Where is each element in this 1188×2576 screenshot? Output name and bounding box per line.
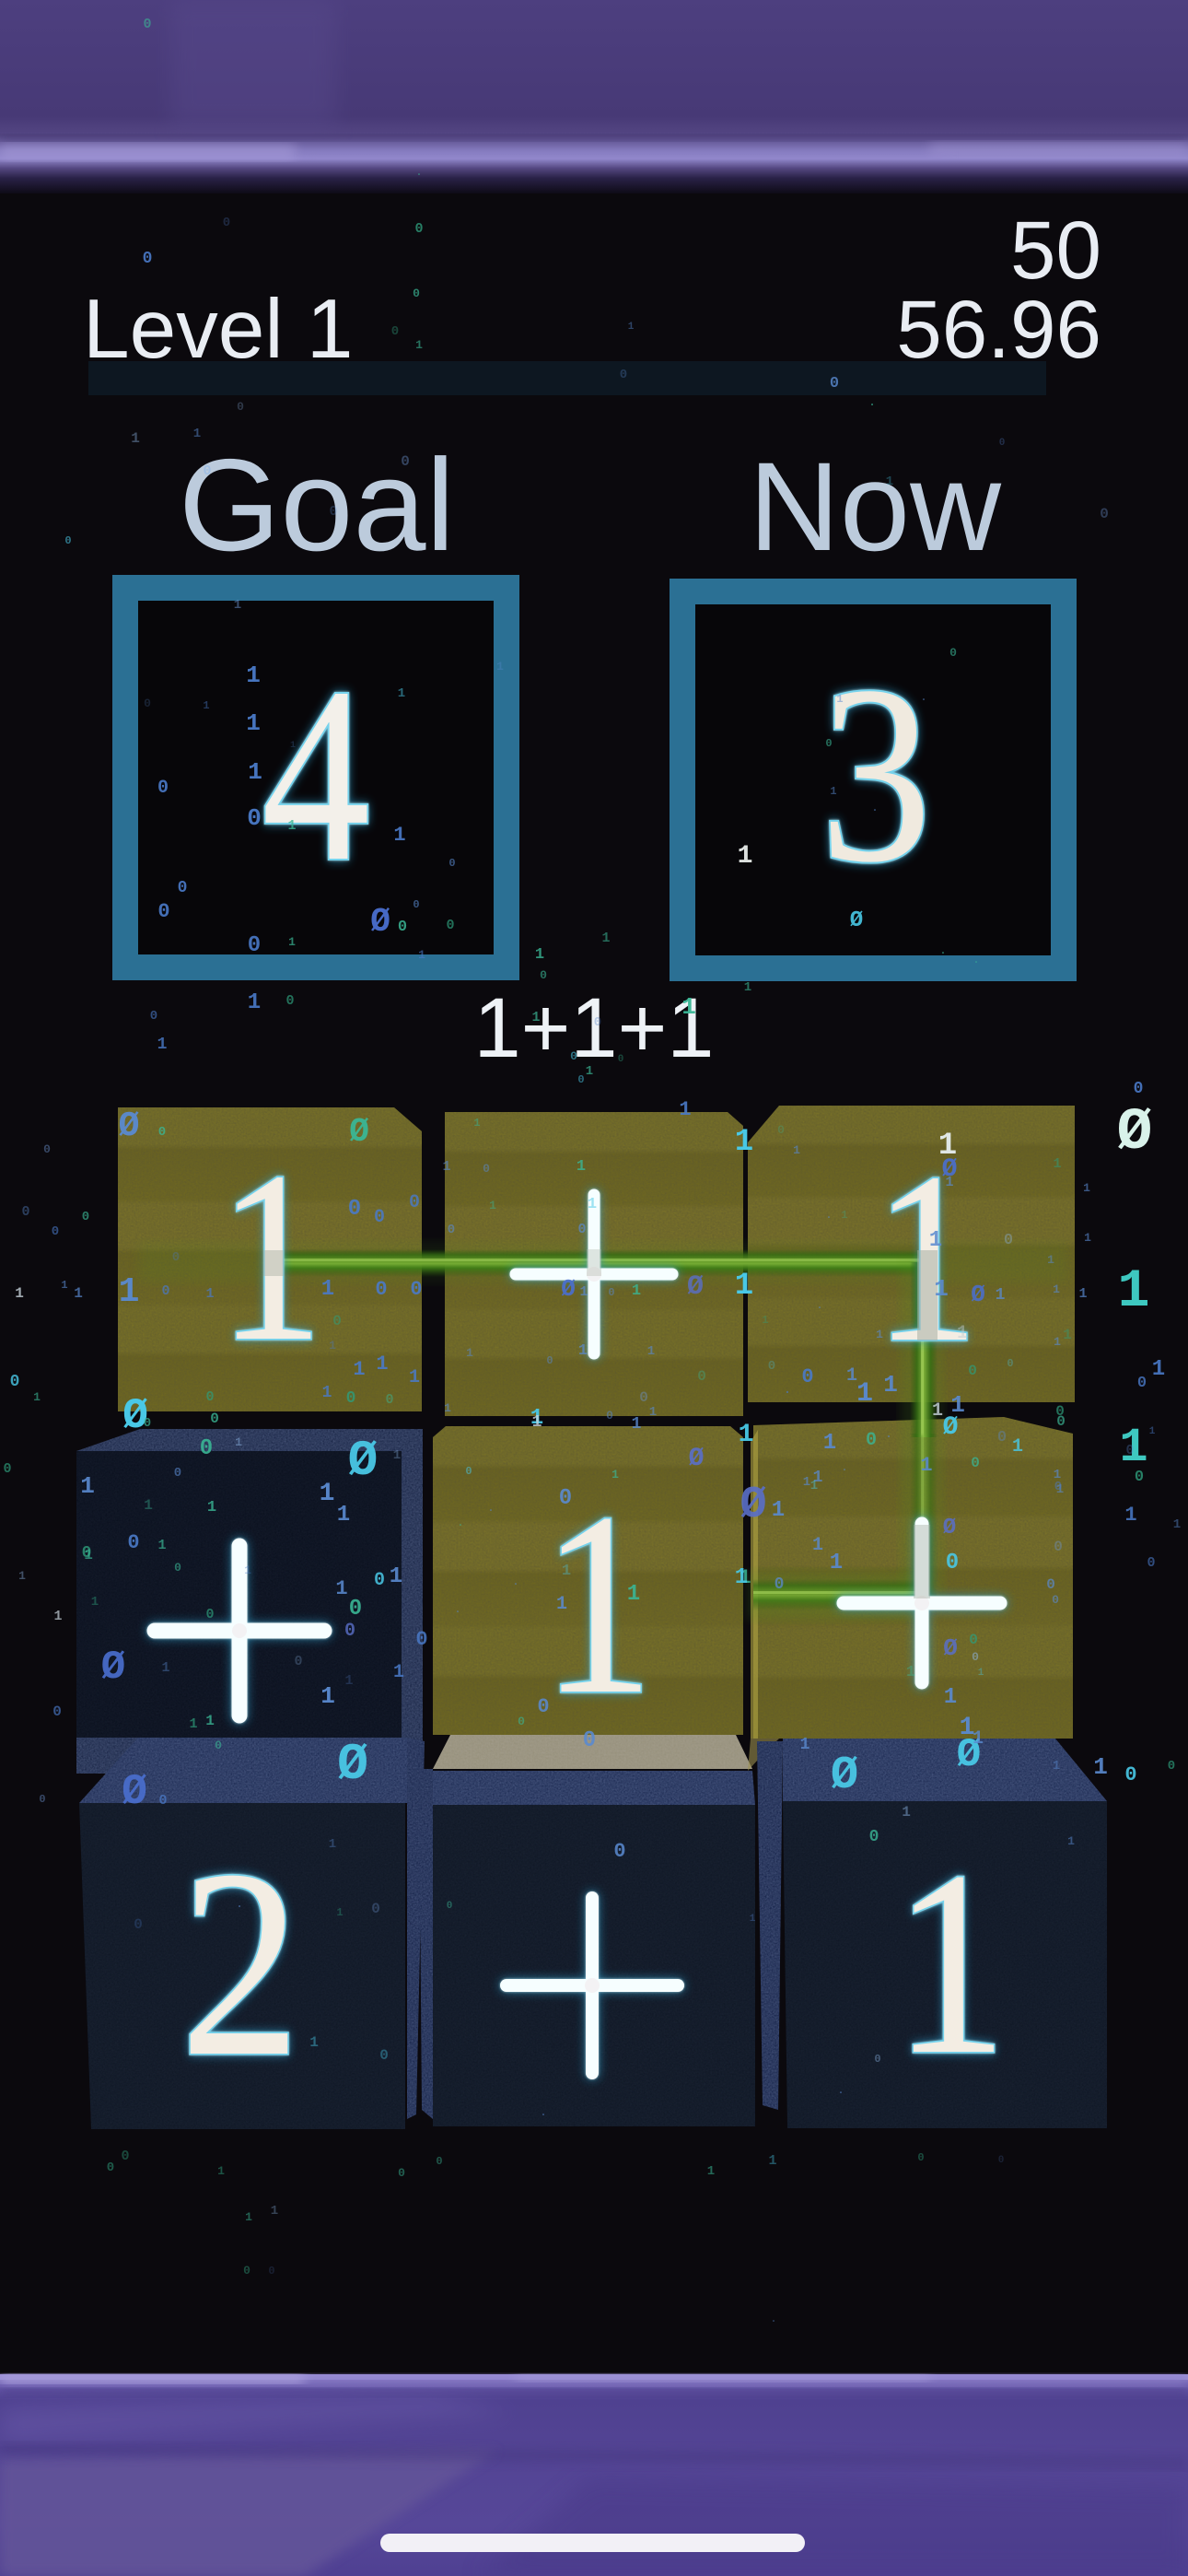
svg-text:1: 1 (442, 1159, 450, 1175)
svg-text:1: 1 (836, 693, 843, 706)
svg-text:1: 1 (398, 686, 405, 701)
svg-text:0: 0 (3, 1461, 11, 1477)
svg-text:0: 0 (410, 1278, 422, 1301)
svg-text:1: 1 (309, 2034, 319, 2051)
svg-text:1: 1 (496, 660, 504, 673)
svg-text:1: 1 (336, 1906, 343, 1919)
svg-text:.: . (457, 1516, 463, 1529)
svg-text:.: . (885, 1427, 892, 1441)
svg-text:1: 1 (376, 1352, 388, 1376)
svg-text:1: 1 (119, 1272, 140, 1312)
svg-text:0: 0 (203, 463, 211, 479)
svg-text:0: 0 (777, 1123, 785, 1137)
svg-text:1: 1 (1149, 1426, 1156, 1437)
svg-text:1: 1 (632, 1282, 641, 1300)
svg-text:1: 1 (681, 993, 696, 1021)
svg-text:1: 1 (131, 430, 140, 447)
svg-text:1: 1 (1054, 1335, 1061, 1349)
svg-text:1: 1 (1067, 1834, 1075, 1848)
svg-text:1: 1 (1053, 1156, 1061, 1172)
svg-text:1: 1 (1063, 1327, 1072, 1343)
svg-text:Ø: Ø (971, 1281, 985, 1308)
svg-text:1: 1 (647, 1344, 655, 1359)
svg-text:Ø: Ø (943, 1413, 959, 1442)
svg-text:1: 1 (883, 1371, 898, 1399)
svg-text:1: 1 (33, 1390, 41, 1404)
svg-text:1: 1 (586, 1064, 593, 1079)
svg-text:0: 0 (247, 804, 262, 832)
svg-text:1: 1 (750, 1914, 756, 1925)
svg-text:1: 1 (1053, 1759, 1060, 1774)
svg-text:Ø: Ø (1117, 1100, 1152, 1166)
svg-text:1: 1 (390, 1564, 402, 1589)
svg-text:0: 0 (1147, 1555, 1155, 1571)
svg-text:1: 1 (562, 1563, 571, 1580)
svg-text:0: 0 (172, 1250, 180, 1265)
svg-text:1: 1 (157, 1036, 168, 1054)
svg-text:1: 1 (1012, 1436, 1023, 1458)
svg-text:0: 0 (107, 2160, 114, 2175)
svg-text:1: 1 (531, 1010, 540, 1025)
svg-text:0: 0 (379, 2047, 389, 2064)
svg-text:0: 0 (518, 1715, 525, 1728)
svg-text:0: 0 (968, 1363, 977, 1379)
svg-text:0: 0 (949, 646, 957, 660)
svg-text:1: 1 (74, 1285, 83, 1302)
svg-text:Ø: Ø (119, 1107, 140, 1146)
svg-text:1: 1 (588, 1196, 597, 1213)
svg-text:0: 0 (1137, 1375, 1147, 1392)
svg-text:1: 1 (290, 741, 296, 751)
svg-text:1: 1 (793, 1143, 800, 1157)
svg-text:0: 0 (946, 1551, 959, 1575)
svg-text:Ø: Ø (740, 1481, 767, 1530)
svg-text:0: 0 (391, 324, 399, 339)
svg-text:0: 0 (1168, 1759, 1175, 1774)
svg-text:1: 1 (80, 1472, 95, 1500)
svg-text:0: 0 (606, 1409, 613, 1423)
svg-text:0: 0 (52, 1224, 59, 1239)
svg-text:0: 0 (969, 1632, 978, 1648)
svg-text:1: 1 (161, 1660, 169, 1676)
svg-text:1: 1 (157, 1538, 166, 1553)
svg-text:0: 0 (10, 1373, 20, 1391)
svg-text:1: 1 (611, 1468, 619, 1481)
svg-text:0: 0 (178, 879, 188, 897)
svg-text:0: 0 (1124, 1763, 1136, 1786)
svg-text:1: 1 (532, 1413, 542, 1432)
svg-text:0: 0 (583, 1728, 596, 1753)
svg-text:0: 0 (972, 1650, 979, 1664)
svg-text:1: 1 (679, 1098, 691, 1121)
svg-text:0: 0 (375, 1278, 387, 1301)
svg-text:0: 0 (121, 2149, 129, 2164)
svg-text:Ø: Ø (348, 1434, 378, 1490)
svg-text:1: 1 (944, 1685, 957, 1710)
svg-text:Ø: Ø (561, 1275, 576, 1303)
svg-text:1: 1 (320, 1480, 335, 1508)
svg-text:0: 0 (161, 1283, 169, 1299)
svg-text:1: 1 (762, 1314, 768, 1327)
svg-text:.: . (512, 1575, 518, 1588)
svg-text:0: 0 (346, 1389, 356, 1408)
svg-text:1: 1 (934, 1275, 949, 1303)
svg-text:0: 0 (1135, 1469, 1144, 1486)
svg-text:0: 0 (371, 1901, 380, 1917)
svg-text:1: 1 (535, 946, 544, 964)
svg-text:0: 0 (1134, 1080, 1144, 1098)
svg-text:Ø: Ø (337, 1735, 368, 1794)
svg-text:1: 1 (744, 980, 751, 995)
svg-text:.: . (487, 1502, 494, 1515)
svg-text:0: 0 (401, 453, 410, 470)
svg-text:1: 1 (735, 1269, 753, 1304)
svg-text:1: 1 (217, 2164, 225, 2178)
svg-text:0: 0 (594, 1015, 601, 1030)
svg-text:0: 0 (613, 1840, 625, 1863)
svg-text:1: 1 (932, 1400, 943, 1422)
svg-text:1: 1 (628, 322, 635, 333)
svg-text:1: 1 (886, 474, 893, 489)
svg-text:1: 1 (649, 1405, 657, 1420)
svg-text:.: . (825, 1209, 832, 1222)
svg-text:0: 0 (285, 993, 294, 1009)
svg-text:0: 0 (775, 1575, 785, 1594)
svg-text:0: 0 (546, 1354, 553, 1367)
svg-text:4: 4 (262, 637, 370, 914)
svg-text:Ø: Ø (689, 1445, 705, 1473)
svg-text:0: 0 (374, 1207, 385, 1228)
svg-text:1: 1 (203, 699, 209, 712)
svg-text:1: 1 (902, 1804, 911, 1821)
svg-text:0: 0 (1056, 1413, 1066, 1430)
svg-text:1: 1 (1118, 1262, 1150, 1322)
svg-text:0: 0 (43, 1142, 51, 1156)
svg-text:.: . (920, 691, 926, 704)
svg-text:0: 0 (329, 504, 337, 520)
svg-text:1: 1 (1124, 1504, 1136, 1527)
svg-text:0: 0 (559, 1486, 572, 1511)
svg-text:0: 0 (144, 1416, 151, 1431)
svg-text:Ø: Ø (687, 1271, 704, 1303)
svg-text:0: 0 (174, 1561, 181, 1575)
svg-text:0: 0 (294, 1654, 302, 1669)
svg-text:0: 0 (39, 1793, 45, 1806)
svg-text:1: 1 (823, 1431, 836, 1456)
svg-text:0: 0 (143, 250, 153, 268)
svg-text:0: 0 (200, 1436, 213, 1461)
svg-text:0: 0 (413, 287, 420, 300)
svg-text:1: 1 (945, 1175, 953, 1190)
svg-text:1: 1 (738, 842, 753, 871)
svg-text:0: 0 (157, 900, 169, 923)
svg-text:0: 0 (620, 368, 627, 382)
svg-text:0: 0 (143, 17, 151, 32)
svg-text:0: 0 (830, 375, 839, 392)
svg-text:1: 1 (627, 1582, 640, 1607)
svg-text:0: 0 (448, 857, 455, 870)
svg-text:.: . (236, 1897, 243, 1911)
svg-text:1: 1 (466, 1346, 473, 1360)
svg-text:1: 1 (489, 1199, 496, 1212)
svg-text:.: . (841, 1461, 847, 1474)
svg-text:1: 1 (876, 1328, 883, 1341)
svg-text:1: 1 (1047, 1253, 1054, 1267)
svg-text:0: 0 (1007, 1357, 1013, 1370)
svg-text:1: 1 (335, 1577, 347, 1600)
svg-text:1: 1 (329, 1339, 336, 1352)
svg-text:0: 0 (210, 1411, 219, 1427)
svg-text:1: 1 (1093, 1753, 1108, 1781)
svg-text:1: 1 (830, 785, 836, 798)
svg-text:1: 1 (978, 1668, 984, 1679)
svg-text:0: 0 (21, 1204, 29, 1220)
svg-text:0: 0 (409, 1192, 420, 1213)
svg-text:0: 0 (157, 778, 169, 799)
svg-text:0: 0 (332, 1313, 342, 1329)
svg-text:3: 3 (820, 634, 931, 916)
svg-text:1: 1 (601, 931, 610, 946)
svg-text:1: 1 (856, 1378, 873, 1410)
svg-text:0: 0 (82, 1210, 89, 1224)
svg-text:1: 1 (800, 1736, 810, 1754)
svg-text:0: 0 (223, 216, 230, 230)
svg-text:1: 1 (321, 1277, 334, 1302)
svg-text:1: 1 (929, 1228, 942, 1253)
svg-text:1: 1 (84, 1547, 93, 1563)
svg-text:0: 0 (150, 1009, 157, 1024)
svg-text:0: 0 (866, 1430, 877, 1451)
svg-text:.: . (871, 802, 878, 814)
svg-text:1: 1 (957, 1323, 968, 1344)
svg-text:50: 50 (1010, 204, 1101, 296)
svg-text:0: 0 (52, 1704, 62, 1720)
svg-text:0: 0 (268, 2265, 274, 2277)
svg-text:0: 0 (618, 1054, 624, 1065)
svg-text:1: 1 (144, 1497, 153, 1514)
svg-text:0: 0 (540, 968, 547, 982)
svg-text:1: 1 (246, 662, 261, 689)
svg-text:1: 1 (707, 2164, 715, 2179)
svg-text:Ø: Ø (943, 1516, 956, 1540)
svg-text:0: 0 (570, 1049, 577, 1063)
svg-text:1: 1 (15, 1285, 24, 1302)
svg-text:1: 1 (1173, 1517, 1181, 1532)
svg-text:Goal: Goal (179, 432, 455, 579)
svg-text:1: 1 (415, 338, 423, 352)
svg-text:1: 1 (996, 1286, 1006, 1305)
svg-text:0: 0 (999, 438, 1006, 449)
svg-text:Ø: Ø (943, 1634, 958, 1662)
svg-text:2: 2 (180, 1814, 300, 2113)
svg-text:.: . (868, 395, 876, 409)
svg-text:1: 1 (810, 1479, 818, 1493)
svg-text:1: 1 (577, 1158, 586, 1176)
svg-text:0: 0 (385, 1392, 393, 1408)
svg-text:0: 0 (446, 918, 454, 933)
svg-text:1: 1 (1152, 1357, 1165, 1382)
svg-text:Ø: Ø (101, 1645, 125, 1691)
svg-text:1: 1 (556, 1594, 567, 1615)
svg-text:0: 0 (1004, 1232, 1013, 1249)
svg-text:1: 1 (409, 1367, 420, 1388)
svg-text:0: 0 (917, 2151, 924, 2164)
svg-text:1: 1 (205, 1286, 214, 1302)
svg-text:0: 0 (874, 2053, 880, 2066)
svg-text:1: 1 (91, 1595, 99, 1610)
svg-text:1: 1 (344, 1673, 353, 1689)
svg-text:0: 0 (1125, 1443, 1134, 1458)
svg-text:1: 1 (393, 1662, 404, 1683)
svg-text:1: 1 (1053, 1282, 1060, 1296)
svg-text:0: 0 (413, 898, 419, 911)
svg-text:0: 0 (237, 400, 244, 414)
svg-text:1: 1 (735, 1565, 748, 1590)
svg-text:Ø: Ø (370, 903, 390, 941)
svg-text:.: . (837, 2084, 844, 2097)
svg-text:0: 0 (768, 1359, 775, 1374)
svg-text:1: 1 (1078, 1286, 1087, 1302)
svg-text:1: 1 (248, 990, 261, 1015)
svg-text:1: 1 (287, 818, 296, 834)
svg-text:1: 1 (322, 1384, 332, 1402)
svg-text:.: . (454, 1603, 460, 1616)
svg-text:0: 0 (158, 1125, 166, 1140)
svg-text:0: 0 (215, 1739, 222, 1752)
svg-text:0: 0 (348, 1197, 361, 1222)
svg-text:0: 0 (398, 919, 407, 936)
svg-text:.: . (770, 2313, 776, 2325)
svg-text:1: 1 (906, 1664, 915, 1681)
svg-text:0: 0 (127, 1531, 139, 1554)
svg-text:1: 1 (973, 1728, 984, 1750)
svg-text:1: 1 (189, 1716, 197, 1732)
svg-text:0: 0 (998, 2155, 1005, 2166)
svg-text:1: 1 (393, 1448, 401, 1463)
svg-text:1: 1 (812, 1535, 823, 1556)
svg-text:Ø: Ø (122, 1768, 147, 1816)
svg-text:0: 0 (997, 1429, 1007, 1446)
svg-text:0: 0 (697, 1368, 706, 1385)
svg-text:1: 1 (739, 1421, 754, 1449)
svg-text:0: 0 (398, 2166, 405, 2180)
svg-text:1: 1 (53, 1609, 62, 1624)
svg-text:0: 0 (1052, 1593, 1059, 1607)
svg-text:1: 1 (444, 1401, 451, 1415)
svg-text:0: 0 (483, 1162, 490, 1176)
svg-text:0: 0 (205, 1389, 214, 1405)
svg-text:0: 0 (205, 1607, 214, 1622)
svg-text:1: 1 (1084, 1231, 1091, 1245)
svg-text:0: 0 (436, 2155, 442, 2168)
svg-text:1: 1 (18, 1569, 26, 1583)
svg-text:0: 0 (158, 1793, 167, 1809)
svg-text:0: 0 (349, 1597, 362, 1622)
svg-text:1: 1 (205, 1713, 215, 1729)
svg-text:0: 0 (447, 1901, 453, 1912)
svg-text:0: 0 (869, 1828, 879, 1846)
svg-text:0: 0 (415, 1628, 427, 1651)
svg-text:1: 1 (772, 1498, 785, 1523)
svg-text:0: 0 (448, 1223, 455, 1237)
svg-text:1: 1 (245, 2210, 252, 2224)
svg-text:0: 0 (577, 1073, 584, 1086)
svg-text:.: . (816, 1299, 822, 1312)
svg-text:0: 0 (537, 1695, 549, 1718)
svg-text:1: 1 (830, 1551, 843, 1575)
svg-text:0: 0 (174, 1466, 181, 1481)
svg-text:1: 1 (234, 598, 241, 613)
svg-text:0: 0 (971, 1455, 980, 1471)
svg-text:.: . (415, 166, 422, 179)
svg-text:0: 0 (608, 1286, 614, 1299)
svg-text:1: 1 (473, 1117, 480, 1130)
svg-text:0: 0 (414, 221, 423, 237)
svg-text:0: 0 (248, 933, 261, 958)
svg-text:0: 0 (1046, 1576, 1055, 1593)
svg-text:1: 1 (337, 1503, 350, 1528)
svg-text:.: . (784, 1383, 791, 1398)
svg-text:1: 1 (393, 824, 405, 847)
svg-text:0: 0 (134, 1916, 143, 1933)
svg-text:1: 1 (320, 1682, 335, 1710)
svg-text:0: 0 (64, 534, 71, 547)
svg-text:1: 1 (893, 1816, 1007, 2109)
svg-text:0: 0 (1054, 1480, 1062, 1494)
svg-text:0: 0 (825, 737, 832, 750)
svg-text:.: . (973, 954, 979, 966)
svg-text:.: . (939, 944, 946, 957)
svg-text:1: 1 (288, 935, 296, 949)
svg-text:Ø: Ø (831, 1750, 858, 1802)
svg-text:0: 0 (374, 1570, 385, 1591)
svg-text:1: 1 (841, 1209, 847, 1222)
svg-text:0: 0 (801, 1365, 813, 1388)
svg-text:Now: Now (749, 437, 1002, 578)
svg-text:1: 1 (271, 2204, 278, 2219)
svg-text:.: . (540, 2106, 546, 2119)
svg-text:1: 1 (61, 1279, 67, 1292)
svg-text:1: 1 (632, 1415, 642, 1434)
svg-text:1: 1 (579, 1284, 588, 1300)
svg-text:1: 1 (246, 709, 261, 737)
svg-text:Ø: Ø (850, 908, 863, 933)
svg-text:0: 0 (243, 2264, 250, 2277)
svg-text:0: 0 (344, 1621, 355, 1642)
svg-text:Ø: Ø (349, 1113, 369, 1151)
svg-text:0: 0 (639, 1389, 648, 1406)
svg-text:0: 0 (577, 1222, 586, 1237)
svg-text:1: 1 (207, 1499, 216, 1516)
svg-text:0: 0 (1100, 506, 1109, 522)
svg-text:1: 1 (920, 1454, 932, 1477)
svg-text:1: 1 (235, 1435, 242, 1449)
svg-text:1: 1 (329, 1837, 336, 1852)
svg-text:0: 0 (144, 697, 151, 710)
svg-text:1: 1 (578, 1342, 588, 1360)
svg-text:1: 1 (418, 948, 425, 962)
svg-text:1: 1 (244, 1563, 251, 1577)
svg-text:0: 0 (1054, 1539, 1063, 1555)
svg-text:1: 1 (735, 1125, 753, 1160)
svg-text:0: 0 (465, 1465, 472, 1478)
svg-text:1: 1 (248, 758, 262, 786)
svg-text:1: 1 (353, 1358, 365, 1381)
svg-text:1: 1 (768, 2153, 776, 2169)
svg-text:1: 1 (1083, 1181, 1090, 1195)
svg-text:1: 1 (193, 427, 201, 441)
